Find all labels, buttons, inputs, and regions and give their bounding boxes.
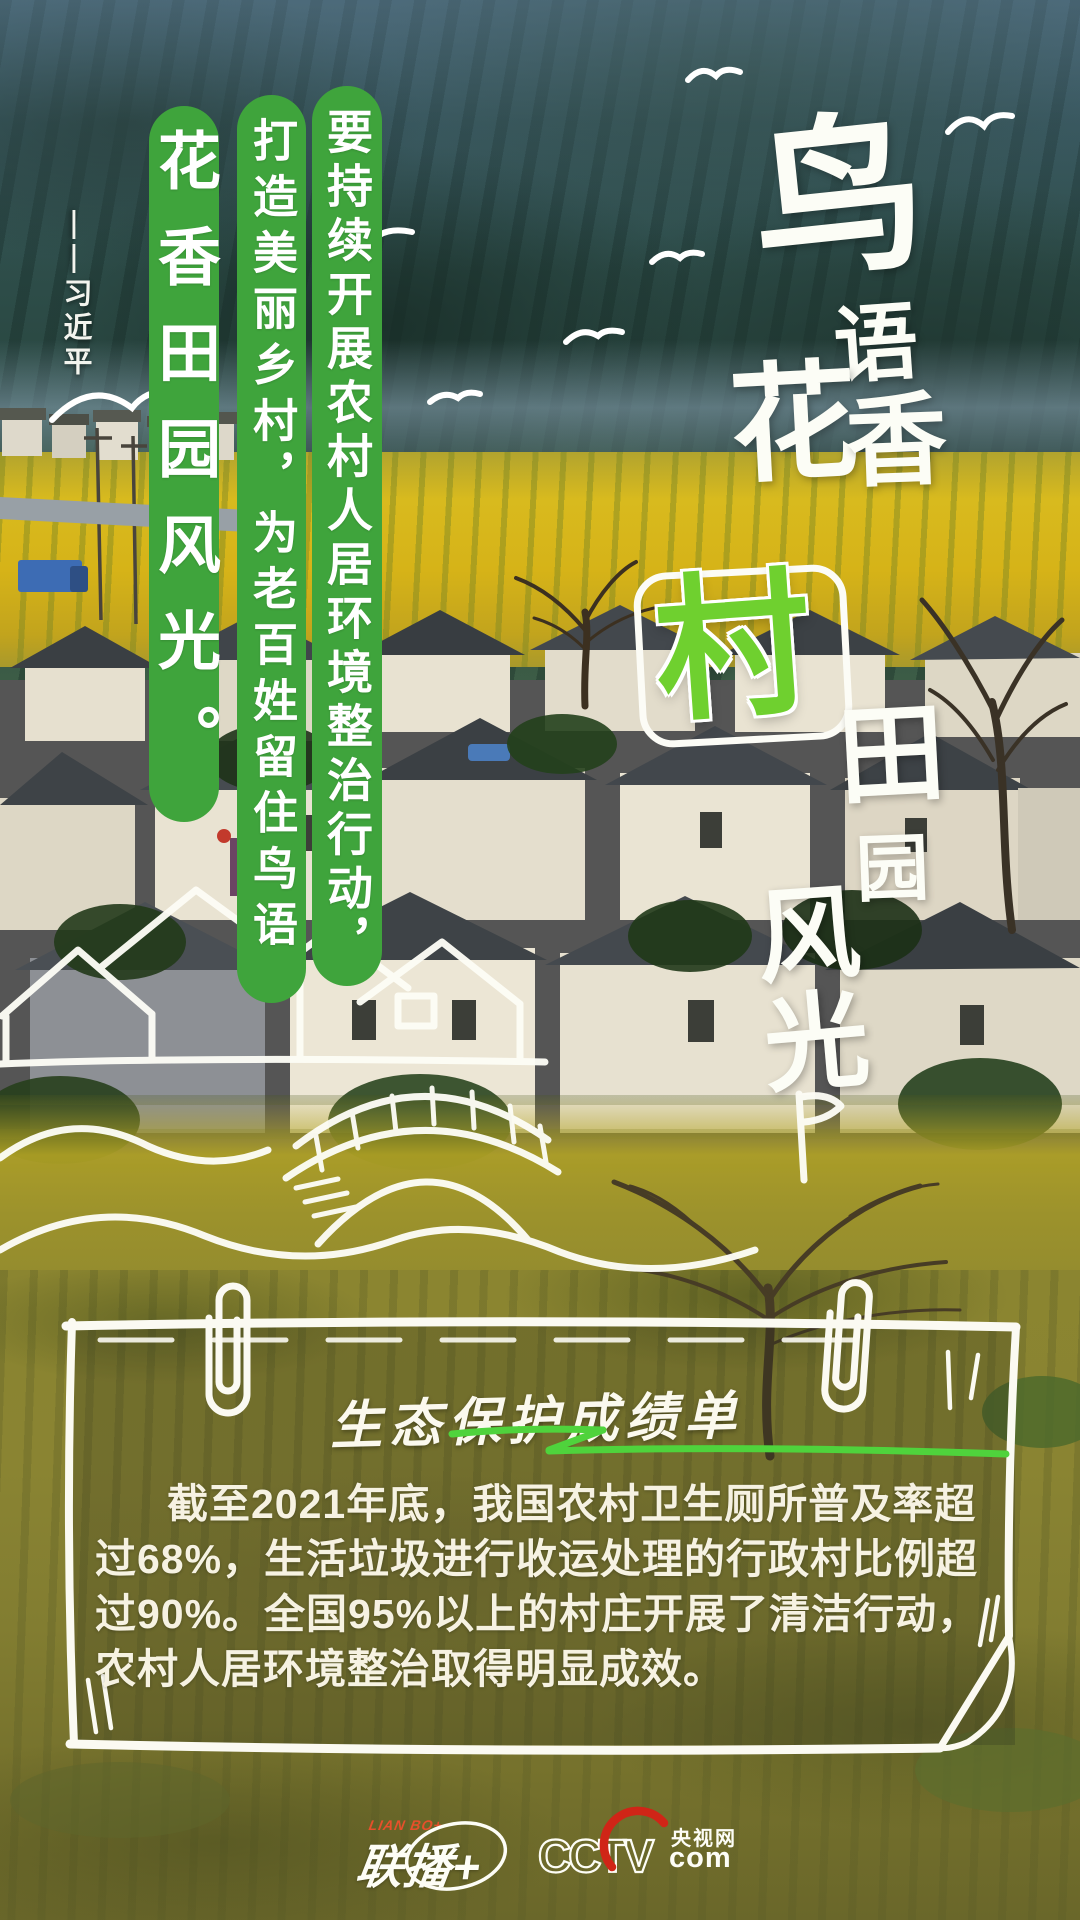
cctv-letters: CCTV	[538, 1830, 655, 1882]
poster-root: ——习近平 要持续开展农村人居环境整治行动， 打造美丽乡村，为老百姓留住鸟语 花…	[0, 0, 1080, 1920]
lianbo-ring	[400, 1814, 511, 1897]
footer-logo-art: CCTV	[0, 0, 1080, 1920]
